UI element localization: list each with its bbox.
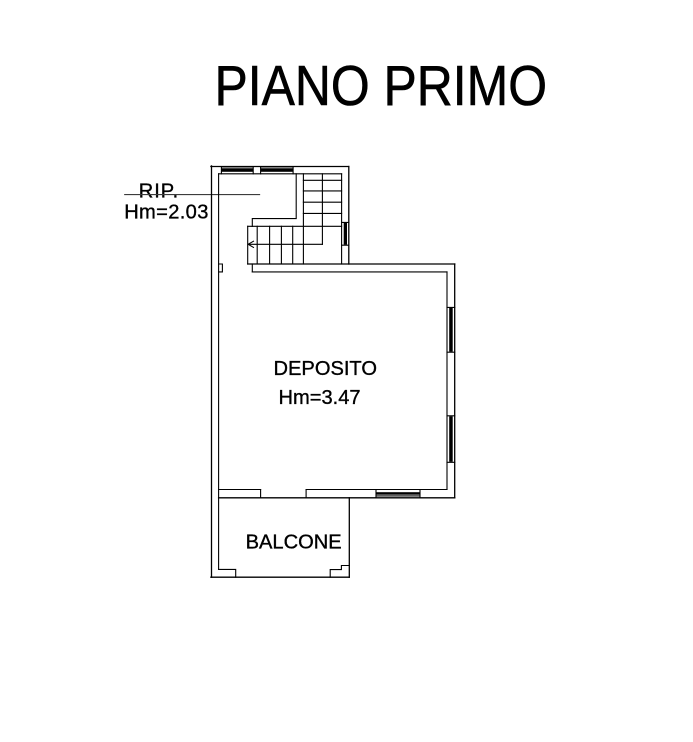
svg-text:BALCONE: BALCONE	[246, 531, 342, 553]
svg-text:Hm=3.47: Hm=3.47	[279, 387, 361, 409]
svg-text:PIANO PRIMO: PIANO PRIMO	[215, 54, 548, 117]
svg-text:RIP.: RIP.	[139, 181, 180, 203]
svg-text:DEPOSITO: DEPOSITO	[274, 358, 377, 380]
svg-text:Hm=2.03: Hm=2.03	[124, 201, 209, 223]
